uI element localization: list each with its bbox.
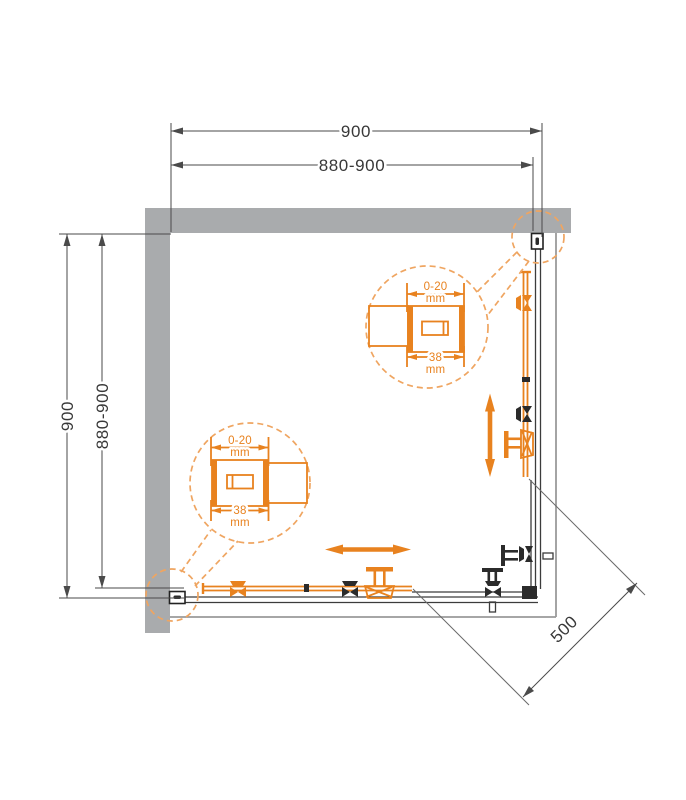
handle-bracket-orange <box>365 567 394 598</box>
diagram-canvas: 900 880-900 900 880-900 500 <box>0 0 686 800</box>
detail-top-range: 0-20 <box>424 281 448 293</box>
dim-left-adjustable-label: 880-900 <box>93 383 112 450</box>
walls <box>145 208 571 633</box>
detail-top-width: 38 <box>429 352 442 364</box>
detail-bottom-range-unit: mm <box>230 447 250 459</box>
corner-pin-right <box>543 553 553 559</box>
sliding-door-right <box>501 272 533 566</box>
dim-top-adjustable-label: 880-900 <box>319 156 386 175</box>
corner-pin-bottom <box>490 602 496 612</box>
corner-bracket-dark <box>501 545 533 566</box>
detail-top-range-unit: mm <box>426 293 446 305</box>
wall-profile-top-right <box>532 234 544 250</box>
corner-bracket-dark <box>482 568 503 597</box>
dim-left-overall-label: 900 <box>58 401 77 431</box>
detail-top-width-unit: mm <box>426 364 446 376</box>
detail-bottom-width-unit: mm <box>230 517 250 529</box>
shower-enclosure-drawing: 900 880-900 900 880-900 500 <box>0 0 686 800</box>
handle-bracket-orange <box>504 430 533 458</box>
detail-bottom-width: 38 <box>233 505 246 517</box>
door-guide <box>304 584 309 592</box>
door-guide <box>522 377 530 382</box>
detail-bottom-profile: 0-20 mm 38 mm <box>211 435 307 529</box>
roller-orange <box>230 581 246 597</box>
detail-top-profile: 0-20 mm 38 mm <box>369 281 464 376</box>
top-wall <box>145 208 571 233</box>
sliding-door-bottom <box>203 567 503 598</box>
corner-bracket <box>522 586 537 599</box>
enclosure-frame <box>170 233 556 617</box>
detail-bottom-range: 0-20 <box>228 435 252 447</box>
roller-dark <box>342 581 358 597</box>
dim-top-overall-label: 900 <box>341 122 371 141</box>
dim-left-adjustable: 880-900 <box>93 234 184 588</box>
slide-arrow-horizontal-icon <box>325 545 411 555</box>
slide-arrow-vertical-icon <box>485 394 495 478</box>
